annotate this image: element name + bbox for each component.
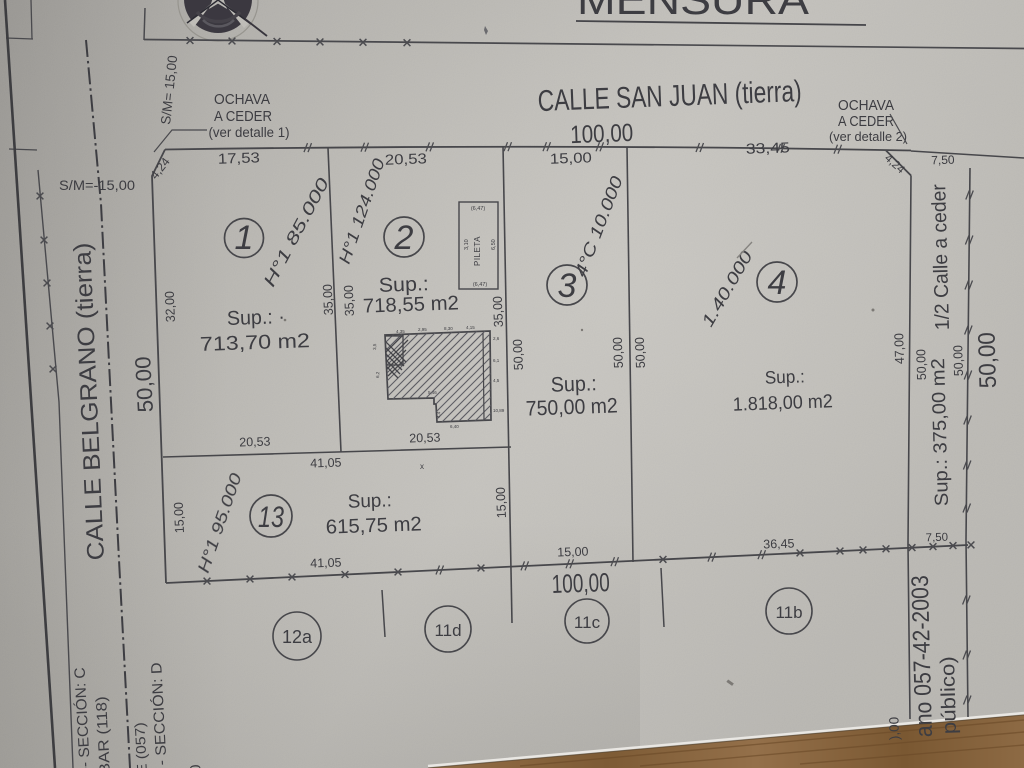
svg-text:50,00: 50,00 <box>510 339 526 371</box>
svg-text:1.818,00 m2: 1.818,00 m2 <box>732 391 833 415</box>
svg-text:41,05: 41,05 <box>310 455 342 470</box>
svg-text:4,4: 4,4 <box>436 411 441 418</box>
svg-text:50,00: 50,00 <box>632 337 648 369</box>
svg-text:Sup.:: Sup.: <box>550 372 597 397</box>
svg-text:15,00: 15,00 <box>493 487 509 519</box>
svg-text:50,00: 50,00 <box>610 337 626 369</box>
svg-text:MENSURA: MENSURA <box>577 0 809 23</box>
svg-text:ano 057-42-2003: ano 057-42-2003 <box>907 575 938 738</box>
svg-text:15,00: 15,00 <box>171 502 187 534</box>
svg-text:(6,47): (6,47) <box>473 282 488 288</box>
svg-text:17,53: 17,53 <box>218 150 261 167</box>
svg-text:100,00: 100,00 <box>551 567 610 599</box>
svg-text:7,50: 7,50 <box>931 153 955 168</box>
svg-text:615,75 m2: 615,75 m2 <box>325 513 422 538</box>
svg-text:11c: 11c <box>574 613 601 632</box>
svg-text:(6,47): (6,47) <box>471 206 486 212</box>
svg-text:),00: ),00 <box>886 717 902 741</box>
svg-text:11d: 11d <box>434 621 461 640</box>
svg-text:OCHAVA: OCHAVA <box>214 91 270 108</box>
svg-text:35,00: 35,00 <box>320 284 336 316</box>
svg-text:4,15: 4,15 <box>466 325 475 330</box>
svg-text:11b: 11b <box>775 603 802 622</box>
svg-text:35,00: 35,00 <box>490 296 506 328</box>
svg-text:Sup.:: Sup.: <box>764 366 805 387</box>
svg-text:2: 2 <box>394 219 414 257</box>
svg-text:PILETA: PILETA <box>473 236 482 266</box>
svg-text:(ver detalle 2): (ver detalle 2) <box>829 129 907 144</box>
svg-text:1/2 Calle a ceder: 1/2 Calle a ceder <box>928 184 954 331</box>
svg-text:41,05: 41,05 <box>310 555 342 570</box>
svg-text:13: 13 <box>258 501 284 534</box>
svg-text:x: x <box>420 462 424 471</box>
svg-text:6,40: 6,40 <box>450 424 459 429</box>
svg-text:Sup.:: Sup.: <box>347 490 392 513</box>
svg-text:36,45: 36,45 <box>763 536 795 551</box>
svg-text:4,5: 4,5 <box>493 378 500 383</box>
svg-text:50,00: 50,00 <box>130 356 158 413</box>
svg-text:50,00: 50,00 <box>950 345 966 376</box>
svg-text:20,53: 20,53 <box>385 151 428 168</box>
svg-text:10,89: 10,89 <box>493 408 505 413</box>
svg-text:8,30: 8,30 <box>444 326 453 331</box>
svg-text:4: 4 <box>768 264 787 302</box>
svg-text:718,55 m2: 718,55 m2 <box>363 292 460 317</box>
svg-text:20,53: 20,53 <box>409 430 441 445</box>
svg-text:2,95: 2,95 <box>418 327 427 332</box>
svg-text:5,46: 5,46 <box>428 390 437 395</box>
svg-text:100,00: 100,00 <box>570 119 634 149</box>
svg-text:15,00: 15,00 <box>557 544 589 559</box>
svg-text:A CEDER: A CEDER <box>838 114 894 130</box>
svg-text:713,70 m2: 713,70 m2 <box>200 330 311 356</box>
svg-text:6,2: 6,2 <box>375 371 380 378</box>
svg-text:3,5: 3,5 <box>372 343 377 350</box>
svg-text:OCHAVA: OCHAVA <box>838 98 894 114</box>
svg-text:35,00: 35,00 <box>341 285 357 317</box>
svg-text:1: 1 <box>235 219 254 257</box>
svg-text:6,1: 6,1 <box>493 358 500 363</box>
svg-text:750,00 m2: 750,00 m2 <box>525 394 618 420</box>
svg-text:(ver detalle 1): (ver detalle 1) <box>209 125 290 140</box>
svg-text:Sup.: 375,00 m2: Sup.: 375,00 m2 <box>928 358 953 506</box>
svg-text:público): público) <box>937 656 961 735</box>
svg-text:20,53: 20,53 <box>239 434 271 449</box>
svg-text:S/M=-15,00: S/M=-15,00 <box>59 177 135 193</box>
svg-text:E (057): E (057) <box>131 722 150 768</box>
svg-text:7,50: 7,50 <box>925 532 948 545</box>
svg-text:Sup.: ·: Sup.: · <box>226 306 285 330</box>
svg-text:6,50: 6,50 <box>491 239 497 250</box>
svg-text:4,35: 4,35 <box>396 329 405 334</box>
svg-text:3,10: 3,10 <box>464 239 470 250</box>
svg-text:15,00: 15,00 <box>550 150 593 167</box>
svg-text:33,45: 33,45 <box>746 140 791 158</box>
svg-text:47,00: 47,00 <box>891 333 907 364</box>
svg-text:12a: 12a <box>282 627 313 647</box>
svg-text:50,00: 50,00 <box>913 349 929 380</box>
svg-text:2,6: 2,6 <box>493 336 500 341</box>
svg-text:50,00: 50,00 <box>974 332 1002 389</box>
svg-text:32,00: 32,00 <box>162 291 178 323</box>
svg-text:A CEDER: A CEDER <box>214 108 272 125</box>
